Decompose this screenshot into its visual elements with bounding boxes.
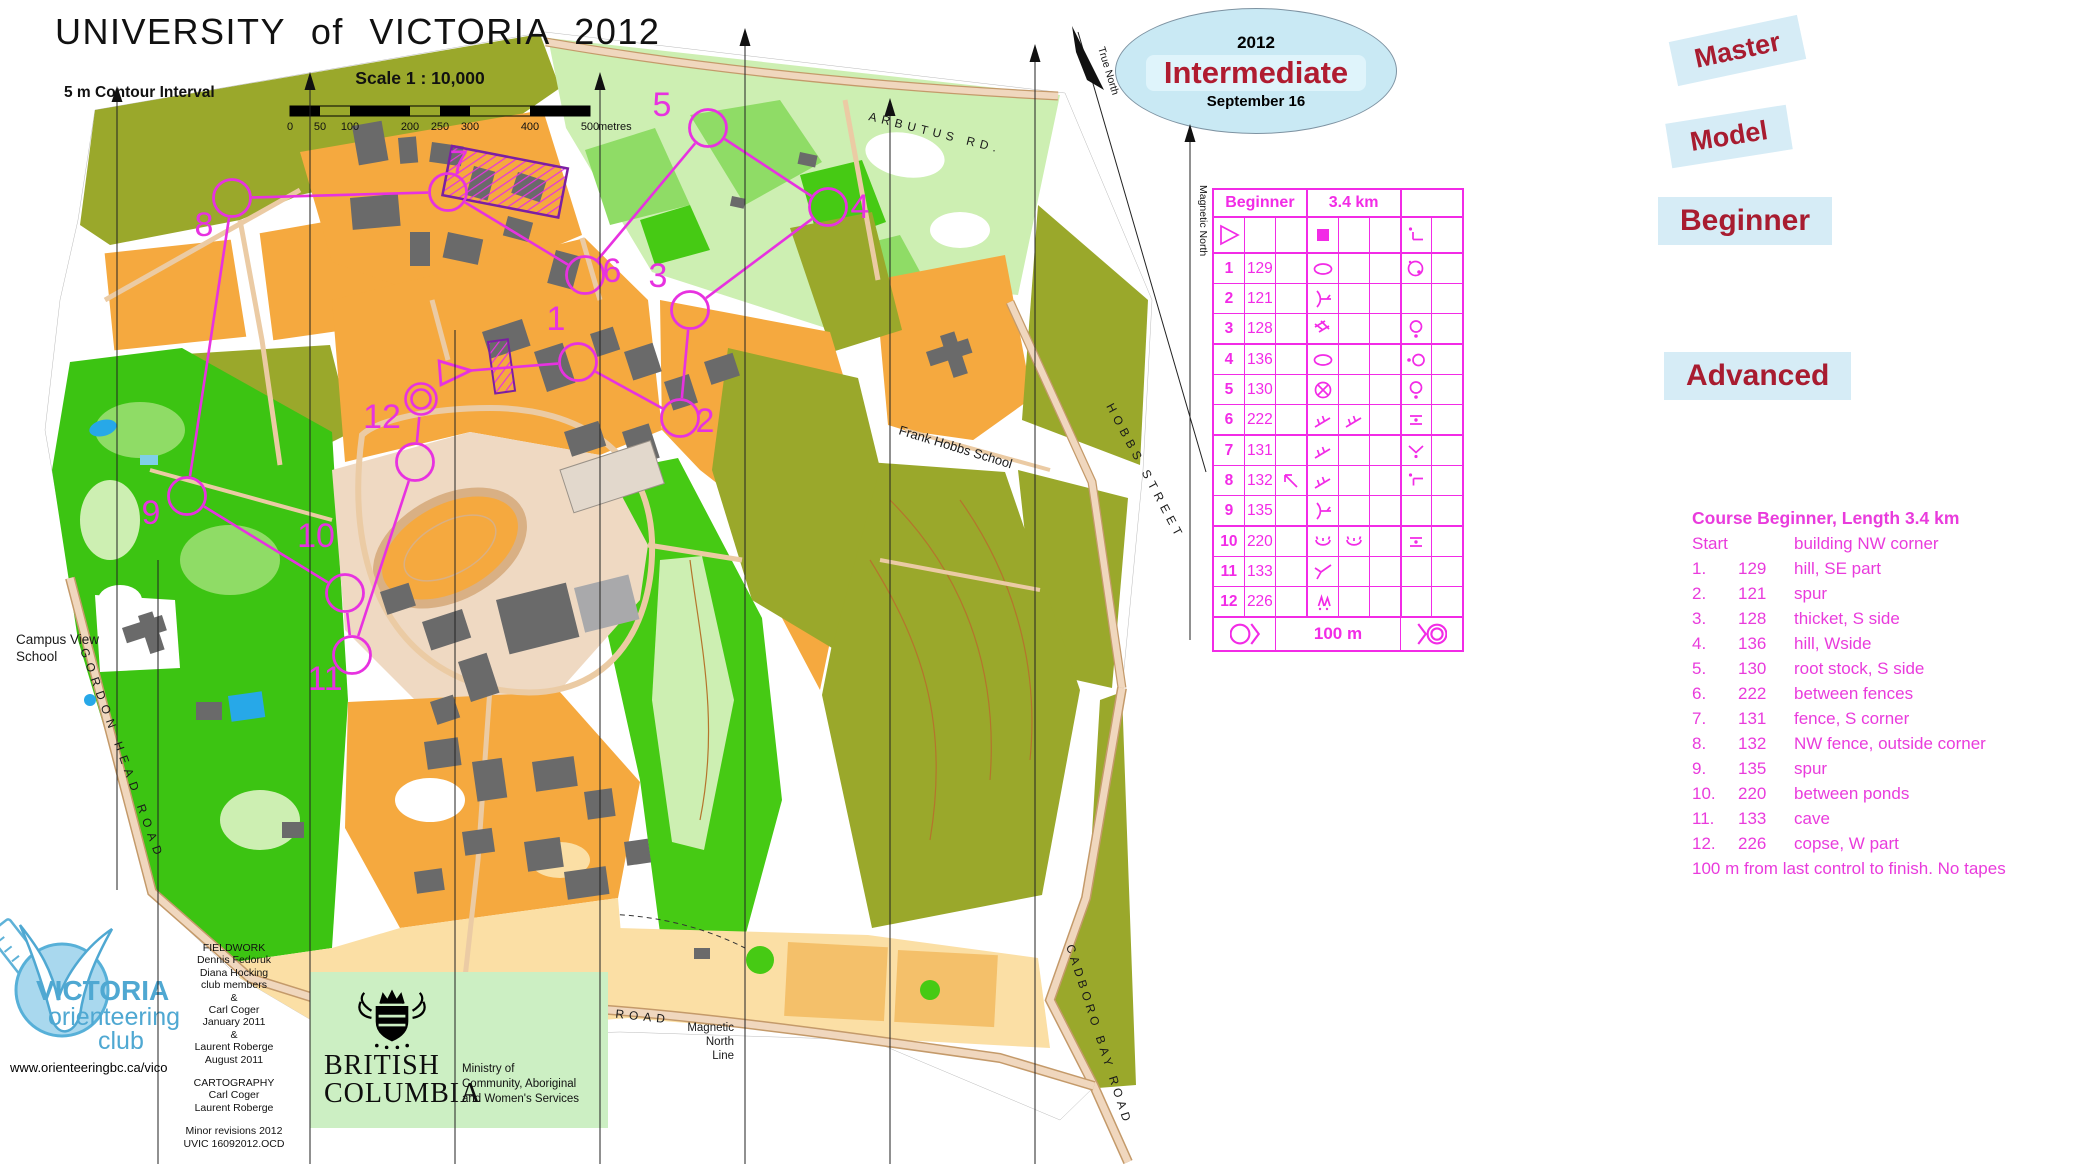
credit-line: UVIC 16092012.OCD xyxy=(163,1138,305,1150)
label-magnetic-line-1: Magnetic xyxy=(687,1022,734,1034)
label-magnetic-line-3: Line xyxy=(712,1050,734,1062)
svg-text:50: 50 xyxy=(314,121,326,133)
credit-line xyxy=(163,1114,305,1125)
scale-label: Scale 1 : 10,000 xyxy=(355,68,485,88)
orienteering-map-sheet: ARBUTUS RD. HOBBS STREET CADBORO BAY ROA… xyxy=(0,0,2091,1164)
hill-symbol-icon xyxy=(1311,257,1335,281)
ministry-line2: Community, Aboriginal xyxy=(462,1077,579,1092)
control-number-5: 5 xyxy=(653,86,672,124)
course-description-row: 1.129hill, SE part xyxy=(1692,556,2091,581)
club-name-line3: club xyxy=(98,1027,144,1055)
between-symbol-icon xyxy=(1404,408,1428,432)
side-w-symbol-icon xyxy=(1404,348,1428,372)
credit-line: Dennis Fedoruk xyxy=(163,954,305,966)
course-label-beginner: Beginner xyxy=(1658,197,1832,245)
course-description-row: 3.128thicket, S side xyxy=(1692,606,2091,631)
course-description-rows: Startbuilding NW corner1.129hill, SE par… xyxy=(1692,531,2091,856)
rootstock-symbol-icon xyxy=(1311,378,1335,402)
course-label-model: Model xyxy=(1665,105,1793,169)
course-description-row: 11.133cave xyxy=(1692,806,2091,831)
card-control-row: 6222 xyxy=(1213,405,1463,436)
ministry-line3: and Women's Services xyxy=(462,1092,579,1107)
badge-year: 2012 xyxy=(1237,33,1275,53)
control-description-card: Beginner 3.4 km 1129 2121 3128 4136 5130… xyxy=(1212,188,1464,652)
club-url: www.orienteeringbc.ca/vico xyxy=(10,1060,168,1075)
svg-text:100: 100 xyxy=(341,121,359,133)
card-control-row: 12226 xyxy=(1213,587,1463,618)
card-course-name: Beginner xyxy=(1213,189,1307,217)
course-description-row: 4.136hill, Wside xyxy=(1692,631,2091,656)
arrow-nw-symbol-icon xyxy=(1279,469,1303,493)
course-description-row: Startbuilding NW corner xyxy=(1692,531,2091,556)
fence-symbol-icon xyxy=(1311,408,1335,432)
badge-course-level: Intermediate xyxy=(1164,55,1348,90)
start-symbol-icon xyxy=(1217,223,1241,247)
pond-symbol-icon xyxy=(1342,530,1366,554)
badge-title-panel: Intermediate xyxy=(1146,55,1366,91)
finish-r-symbol-icon xyxy=(1417,619,1447,649)
control-number-4: 4 xyxy=(851,188,870,226)
bc-name-line1: BRITISH xyxy=(324,1052,481,1080)
cave-symbol-icon xyxy=(1311,560,1335,584)
fence-symbol-icon xyxy=(1311,469,1335,493)
control-card-table: Beginner 3.4 km 1129 2121 3128 4136 5130… xyxy=(1212,188,1464,652)
credit-line: Laurent Roberge xyxy=(163,1102,305,1114)
svg-text:500: 500 xyxy=(581,121,599,133)
side-s-symbol-icon xyxy=(1404,378,1428,402)
card-finish-distance: 100 m xyxy=(1276,617,1401,651)
card-control-row: 9135 xyxy=(1213,496,1463,527)
course-description-row: 10.220between ponds xyxy=(1692,781,2091,806)
credit-line: Laurent Roberge xyxy=(163,1041,305,1053)
credit-line: Carl Coger xyxy=(163,1089,305,1101)
map-title: UNIVERSITY of VICTORIA 2012 xyxy=(55,11,660,52)
credit-line: Minor revisions 2012 xyxy=(163,1125,305,1137)
bc-name-line2: COLUMBIA xyxy=(324,1080,481,1108)
card-control-row: 11133 xyxy=(1213,557,1463,587)
card-control-row: 10220 xyxy=(1213,526,1463,557)
credit-line: Carl Coger xyxy=(163,1004,305,1016)
part-se-symbol-icon xyxy=(1404,257,1428,281)
card-control-row: 4136 xyxy=(1213,344,1463,375)
course-description-row: 8.132NW fence, outside corner xyxy=(1692,731,2091,756)
control-number-12: 12 xyxy=(363,398,401,436)
card-control-row: 8132 xyxy=(1213,466,1463,496)
copse-symbol-icon xyxy=(1311,590,1335,614)
card-control-row: 3128 xyxy=(1213,314,1463,345)
course-description: Course Beginner, Length 3.4 km Startbuil… xyxy=(1692,505,2091,881)
credit-line: & xyxy=(163,1029,305,1041)
course-label-advanced: Advanced xyxy=(1664,352,1851,400)
card-control-row: 2121 xyxy=(1213,284,1463,314)
course-label-master: Master xyxy=(1669,15,1807,86)
card-course-length: 3.4 km xyxy=(1307,189,1401,217)
finish-l-symbol-icon xyxy=(1230,619,1260,649)
course-description-title: Course Beginner, Length 3.4 km xyxy=(1692,505,2091,531)
svg-text:200: 200 xyxy=(401,121,419,133)
pond-symbol-icon xyxy=(1311,530,1335,554)
control-number-7: 7 xyxy=(450,144,469,182)
square-symbol-icon xyxy=(1311,223,1335,247)
credits-block: FIELDWORKDennis FedorukDiana Hockingclub… xyxy=(163,942,305,1150)
control-number-8: 8 xyxy=(195,206,214,244)
course-description-row: 9.135spur xyxy=(1692,756,2091,781)
credit-line: August 2011 xyxy=(163,1054,305,1066)
club-name-line1: VICTORIA xyxy=(36,975,169,1006)
credit-line xyxy=(163,1066,305,1077)
bend-symbol-icon xyxy=(1404,223,1428,247)
between-symbol-icon xyxy=(1404,530,1428,554)
course-description-footer: 100 m from last control to finish. No ta… xyxy=(1692,856,2091,881)
label-campus-view-2: School xyxy=(16,649,57,664)
control-number-1: 1 xyxy=(547,300,566,338)
course-description-row: 7.131fence, S corner xyxy=(1692,706,2091,731)
control-number-2: 2 xyxy=(696,402,715,440)
svg-text:400: 400 xyxy=(521,121,539,133)
credit-line: Diana Hocking xyxy=(163,967,305,979)
bc-coat-of-arms-icon xyxy=(350,980,434,1054)
contour-interval-label: 5 m Contour Interval xyxy=(64,84,215,101)
course-description-row: 5.130root stock, S side xyxy=(1692,656,2091,681)
badge-date: September 16 xyxy=(1207,93,1305,110)
label-campus-view-1: Campus View xyxy=(16,632,99,647)
corner-symbol-icon xyxy=(1404,439,1428,463)
outside-corner-symbol-icon xyxy=(1404,469,1428,493)
card-start-row xyxy=(1213,217,1463,253)
control-number-11: 11 xyxy=(307,660,342,698)
credit-line: FIELDWORK xyxy=(163,942,305,954)
british-columbia-logo-box: BRITISH COLUMBIA Ministry of Community, … xyxy=(310,972,608,1128)
hill-symbol-icon xyxy=(1311,348,1335,372)
control-number-6: 6 xyxy=(603,252,622,290)
ministry-line1: Ministry of xyxy=(462,1062,579,1077)
card-control-row: 1129 xyxy=(1213,253,1463,284)
card-header-row: Beginner 3.4 km xyxy=(1213,189,1463,217)
fence-symbol-icon xyxy=(1342,408,1366,432)
card-control-row: 7131 xyxy=(1213,435,1463,466)
bc-ministry: Ministry of Community, Aboriginal and Wo… xyxy=(462,1062,579,1107)
control-number-10: 10 xyxy=(297,517,335,555)
course-description-row: 6.222between fences xyxy=(1692,681,2091,706)
scale-unit: metres xyxy=(598,121,632,133)
spur-symbol-icon xyxy=(1311,499,1335,523)
label-magnetic-line-2: North xyxy=(706,1036,734,1048)
credit-line: January 2011 xyxy=(163,1016,305,1028)
bc-logo-name: BRITISH COLUMBIA xyxy=(324,1052,481,1108)
thicket-symbol-icon xyxy=(1311,317,1335,341)
card-control-row: 5130 xyxy=(1213,375,1463,405)
course-description-row: 2.121spur xyxy=(1692,581,2091,606)
svg-text:250: 250 xyxy=(431,121,449,133)
spur-symbol-icon xyxy=(1311,287,1335,311)
fence-symbol-icon xyxy=(1311,439,1335,463)
card-footer-row: 100 m xyxy=(1213,617,1463,651)
control-number-9: 9 xyxy=(142,494,161,532)
credit-line: club members xyxy=(163,979,305,991)
svg-text:0: 0 xyxy=(287,121,293,133)
side-s-symbol-icon xyxy=(1404,317,1428,341)
course-description-row: 12.226copse, W part xyxy=(1692,831,2091,856)
svg-text:300: 300 xyxy=(461,121,479,133)
control-number-3: 3 xyxy=(649,257,668,295)
event-badge: 2012 Intermediate September 16 xyxy=(1115,8,1397,134)
credit-line: CARTOGRAPHY xyxy=(163,1077,305,1089)
credit-line: & xyxy=(163,992,305,1004)
